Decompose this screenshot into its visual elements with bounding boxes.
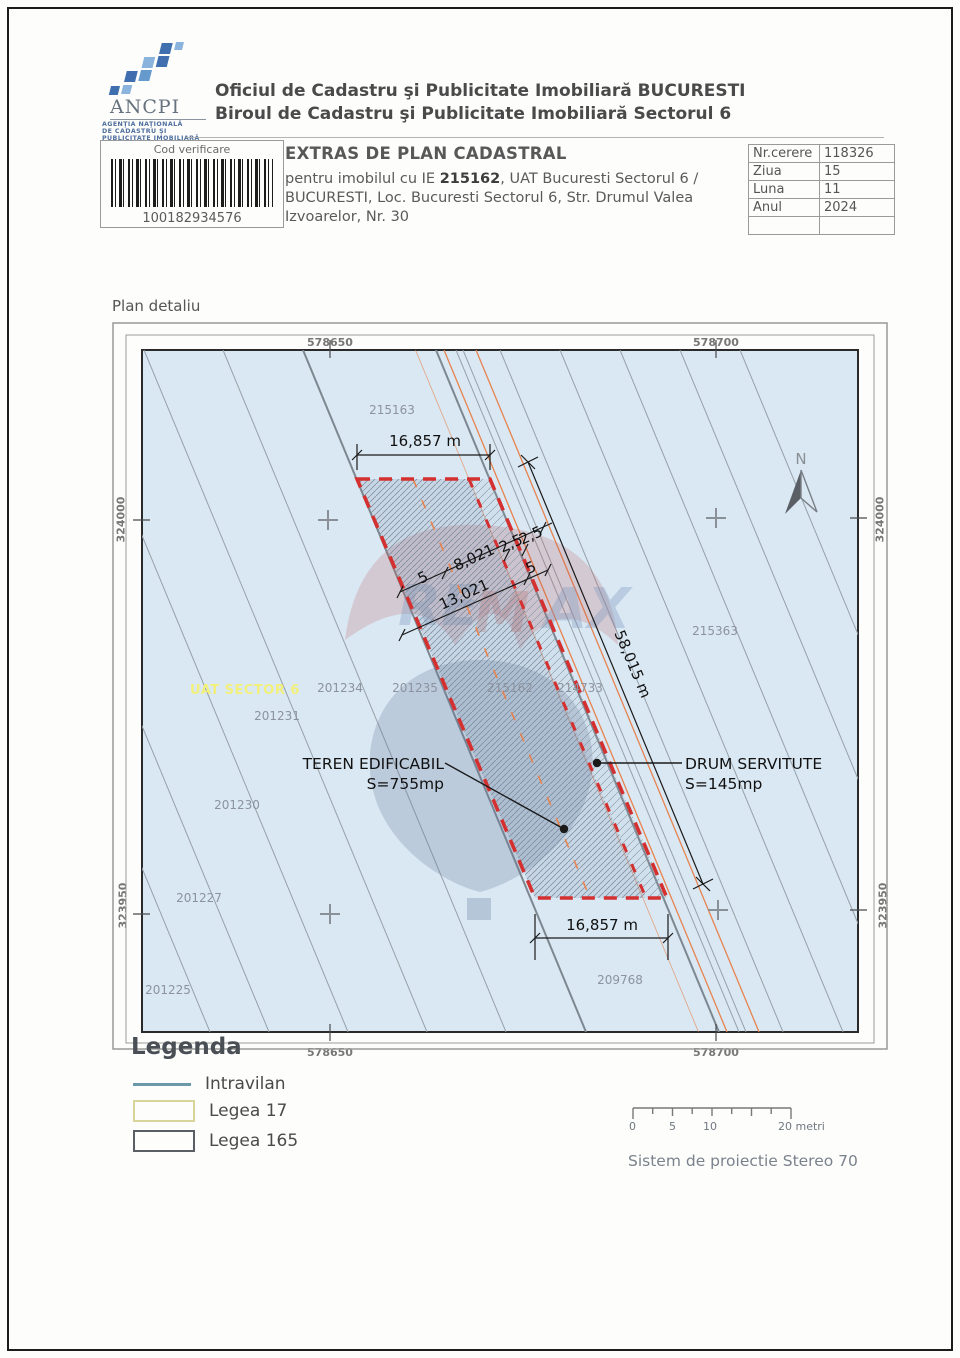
intravilan-line-swatch	[133, 1083, 191, 1086]
scale-bar	[622, 1100, 812, 1122]
map-section-title: Plan detaliu	[112, 297, 200, 315]
request-row-label: Luna	[749, 181, 820, 199]
legend-item-intravilan: Intravilan	[133, 1074, 286, 1094]
scale-label-10: 10	[703, 1120, 717, 1133]
table-row: Luna 11	[749, 181, 895, 199]
request-row-value: 11	[820, 181, 895, 199]
legend-item-label: Legea 17	[209, 1101, 287, 1121]
north-label: N	[795, 450, 806, 468]
request-row-value: 118326	[820, 145, 895, 163]
legend-item-legea165: Legea 165	[133, 1130, 298, 1152]
cadastral-map: RE M AX	[112, 322, 888, 1050]
scale-label-20: 20 metri	[778, 1120, 825, 1133]
cadastral-extract-page: ANCPI AGENŢIA NAŢIONALĂ DE CADASTRU ŞI P…	[0, 0, 960, 1358]
scale-label-5: 5	[669, 1120, 676, 1133]
office-title-line2: Biroul de Cadastru şi Publicitate Imobil…	[215, 103, 775, 126]
parcel-label: 201227	[176, 891, 222, 905]
teren-label-line1: TEREN EDIFICABIL	[302, 755, 445, 773]
drum-label-line1: DRUM SERVITUTE	[685, 755, 822, 773]
barcode	[111, 159, 273, 207]
legend-item-legea17: Legea 17	[133, 1100, 287, 1122]
dimension-bottom-width-label: 16,857 m	[566, 916, 638, 934]
parcel-label: 215162	[487, 681, 533, 695]
document-subject: pentru imobilul cu IE 215162, UAT Bucure…	[285, 170, 747, 227]
parcel-label: 201230	[214, 798, 260, 812]
request-table: Nr.cerere 118326 Ziua 15 Luna 11 Anul 20…	[748, 144, 895, 235]
request-row-label: Anul	[749, 199, 820, 217]
uat-sector-label: UAT SECTOR 6	[190, 683, 300, 698]
table-row-empty	[749, 217, 895, 235]
parcel-label: 215363	[692, 624, 738, 638]
office-title: Oficiul de Cadastru şi Publicitate Imobi…	[215, 80, 775, 126]
ancpi-acronym: ANCPI	[110, 96, 206, 120]
request-row-value: 15	[820, 163, 895, 181]
parcel-label: 201231	[254, 709, 300, 723]
verification-label: Cod verificare	[101, 143, 283, 156]
request-row-label: Ziua	[749, 163, 820, 181]
office-title-line1: Oficiul de Cadastru şi Publicitate Imobi…	[215, 80, 775, 103]
legea165-rect-swatch	[133, 1130, 195, 1152]
table-row: Nr.cerere 118326	[749, 145, 895, 163]
parcel-label: 209768	[597, 973, 643, 987]
table-row: Anul 2024	[749, 199, 895, 217]
parcel-label: 214733	[557, 681, 603, 695]
subject-prefix: pentru imobilul cu IE	[285, 171, 440, 187]
request-row-value: 2024	[820, 199, 895, 217]
legend-item-label: Intravilan	[205, 1074, 286, 1094]
verification-box: Cod verificare 100182934576	[100, 140, 284, 228]
verification-code: 100182934576	[138, 211, 245, 226]
ancpi-subtitle-line1: AGENŢIA NAŢIONALĂ	[102, 121, 222, 128]
ancpi-logo-squares	[109, 42, 184, 95]
document-title: EXTRAS DE PLAN CADASTRAL	[285, 144, 705, 163]
parcel-label: 215163	[369, 403, 415, 417]
scale-label-0: 0	[629, 1120, 636, 1133]
legend-title: Legenda	[131, 1034, 242, 1060]
teren-label-line2: S=755mp	[367, 775, 444, 793]
header-divider	[186, 137, 884, 138]
parcel-label: 201234	[317, 681, 363, 695]
drum-label-line2: S=145mp	[685, 775, 762, 793]
request-row-label: Nr.cerere	[749, 145, 820, 163]
parcel-label: 201235	[392, 681, 438, 695]
table-row: Ziua 15	[749, 163, 895, 181]
projection-system-label: Sistem de proiectie Stereo 70	[628, 1152, 858, 1170]
dimension-top-width-label: 16,857 m	[389, 432, 461, 450]
legend-item-label: Legea 165	[209, 1131, 298, 1151]
legea17-rect-swatch	[133, 1100, 195, 1122]
ancpi-logo	[104, 42, 184, 100]
parcel-label: 201225	[145, 983, 191, 997]
subject-ie-number: 215162	[440, 171, 501, 187]
